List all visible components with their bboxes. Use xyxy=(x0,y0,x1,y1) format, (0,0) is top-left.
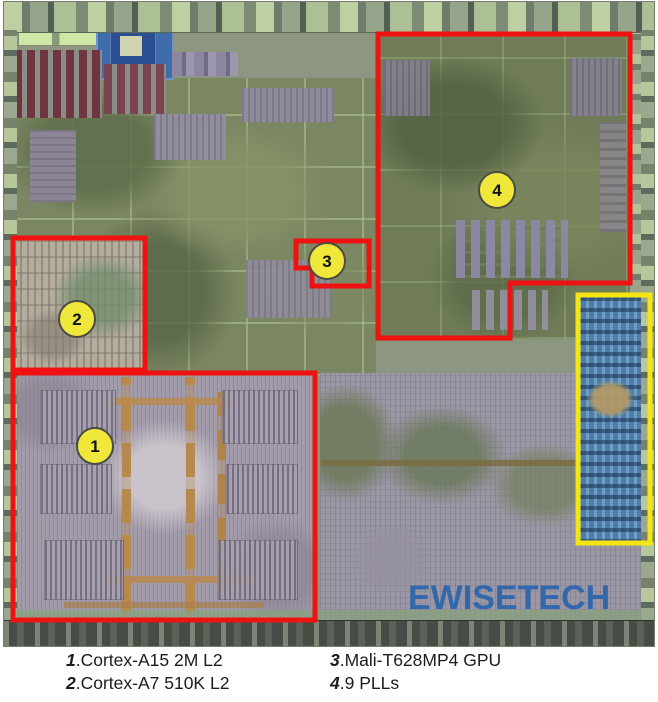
legend-column-left: 1.Cortex-A15 2M L2 2.Cortex-A7 510K L2 xyxy=(66,649,229,694)
page: { "figure": { "watermark": { "text": "EW… xyxy=(0,0,658,702)
region-outline-analog-highlight xyxy=(578,295,650,543)
legend-item-3: 3.Mali-T628MP4 GPU xyxy=(330,649,501,672)
legend-label: .9 PLLs xyxy=(340,673,399,693)
marker-number-1: 1 xyxy=(90,437,99,456)
annotation-layer: 1234 xyxy=(4,2,654,646)
legend-number: 3 xyxy=(330,650,340,670)
legend-label: .Cortex-A15 2M L2 xyxy=(76,650,223,670)
legend-item-2: 2.Cortex-A7 510K L2 xyxy=(66,672,229,695)
marker-number-4: 4 xyxy=(492,181,502,200)
die-photo: EWISETECH 1234 xyxy=(4,2,654,646)
legend-number: 4 xyxy=(330,673,340,693)
legend-number: 1 xyxy=(66,650,76,670)
legend-label: .Mali-T628MP4 GPU xyxy=(340,650,501,670)
legend-label: .Cortex-A7 510K L2 xyxy=(76,673,230,693)
region-outline-1 xyxy=(13,373,315,620)
legend-item-1: 1.Cortex-A15 2M L2 xyxy=(66,649,229,672)
legend-column-right: 3.Mali-T628MP4 GPU 4.9 PLLs xyxy=(330,649,501,694)
marker-number-3: 3 xyxy=(322,252,331,271)
legend-number: 2 xyxy=(66,673,76,693)
marker-number-2: 2 xyxy=(72,310,81,329)
legend-item-4: 4.9 PLLs xyxy=(330,672,501,695)
